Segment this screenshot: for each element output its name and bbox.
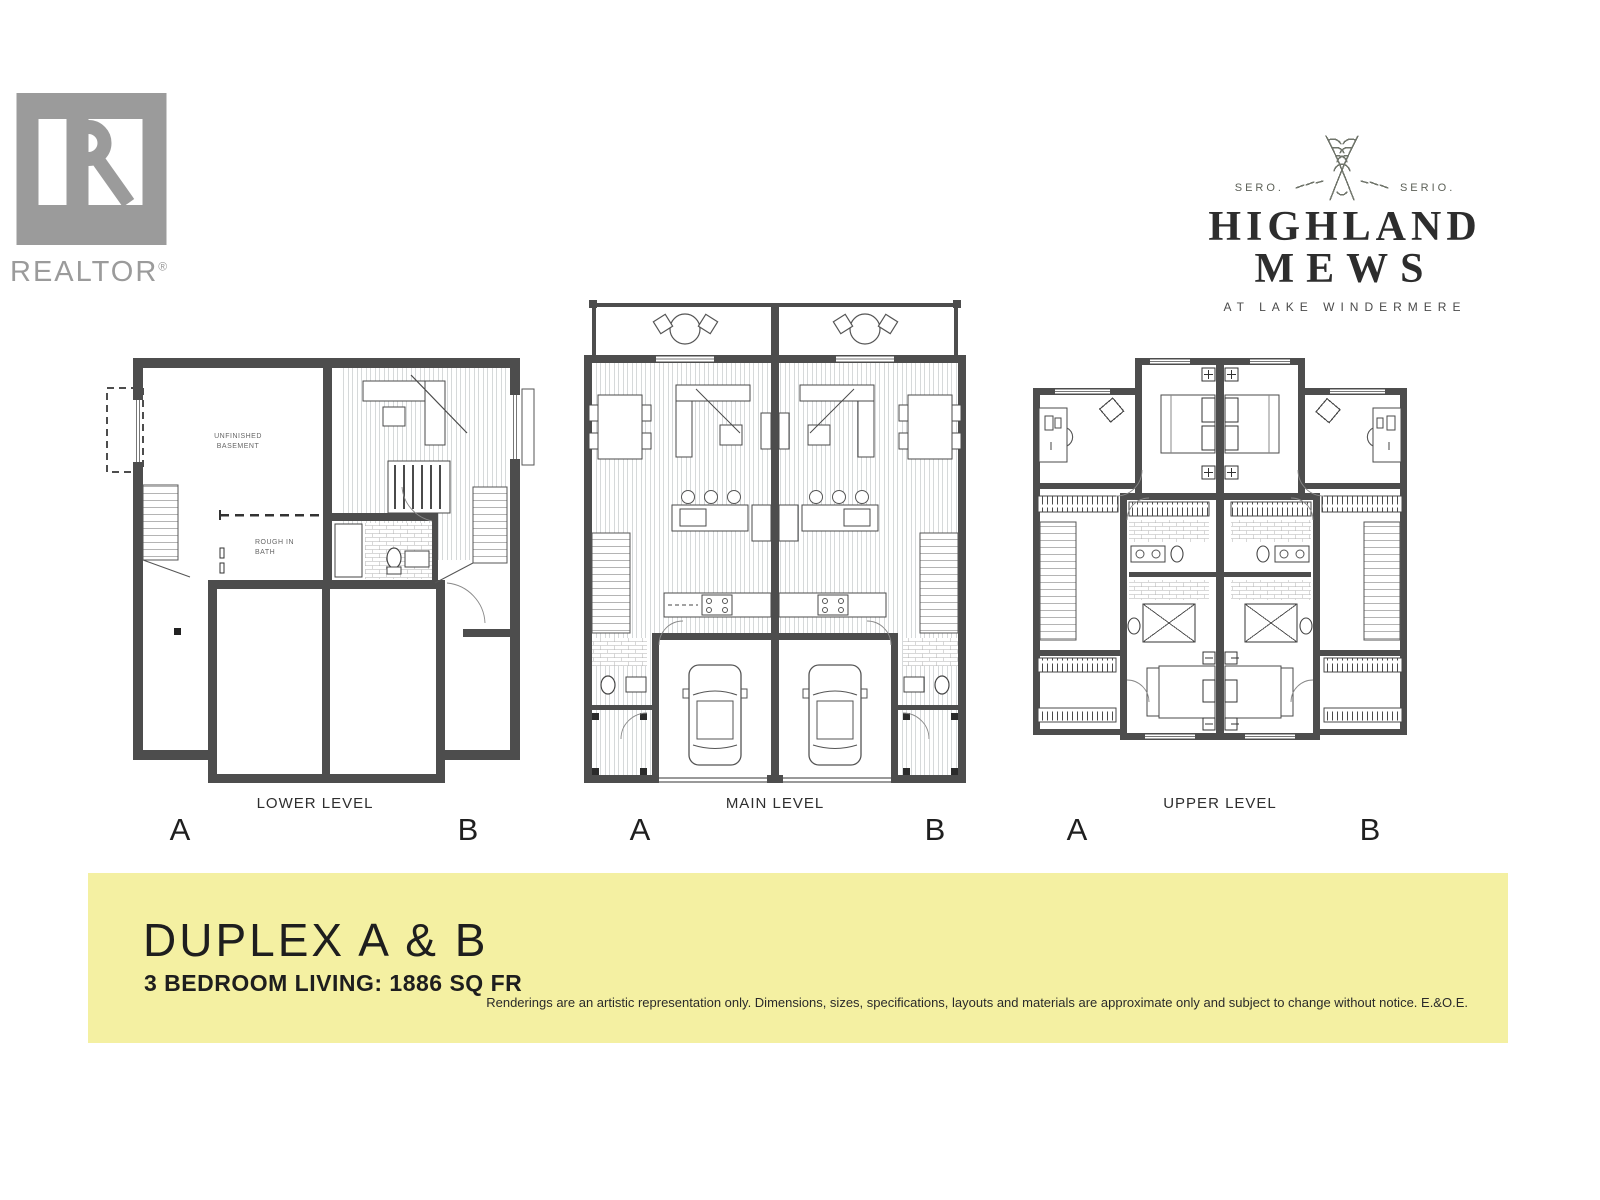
motto-left: SERO. xyxy=(1235,182,1284,204)
stairs-right xyxy=(473,487,507,563)
unit-a-label-lower: A xyxy=(160,812,200,848)
room-label-bath-1: ROUGH IN xyxy=(255,539,294,546)
flyer-page: REALTOR® SERO. SERIO. HIGHLAND xyxy=(0,0,1600,1200)
unit-b-label-upper: B xyxy=(1350,812,1390,848)
banner-title: DUPLEX A & B xyxy=(143,913,488,967)
main-level-caption: MAIN LEVEL xyxy=(568,795,982,812)
realtor-logo: REALTOR® xyxy=(10,93,180,289)
stairs-right xyxy=(920,533,958,633)
registered-mark: ® xyxy=(158,259,169,273)
brand-name-line2: MEWS xyxy=(1180,248,1510,290)
unit-b-label-main: B xyxy=(915,812,955,848)
foundation-boxes xyxy=(208,580,445,783)
lower-level-caption: LOWER LEVEL xyxy=(95,795,535,812)
room-label-bath-2: BATH xyxy=(255,549,275,556)
upper-walls xyxy=(1033,358,1407,740)
floor-plan-main-level xyxy=(568,293,982,793)
upper-level-caption: UPPER LEVEL xyxy=(1025,795,1415,812)
banner-subtitle: 3 BEDROOM LIVING: 1886 SQ FR xyxy=(144,970,522,997)
deck xyxy=(589,300,961,355)
realtor-r-icon xyxy=(10,93,173,245)
unit-a-label-main: A xyxy=(620,812,660,848)
stairs-left xyxy=(592,533,630,633)
motto-right: SERIO. xyxy=(1400,182,1455,204)
room-label-basement-1: UNFINISHED xyxy=(214,433,262,440)
realtor-wordmark: REALTOR® xyxy=(10,256,180,289)
brand-name-line1: HIGHLAND xyxy=(1180,206,1510,248)
unit-a-label-upper: A xyxy=(1057,812,1097,848)
banner-disclaimer: Renderings are an artistic representatio… xyxy=(486,995,1468,1010)
brand-logo: SERO. SERIO. HIGHLAND MEWS AT LAKE WINDE… xyxy=(1180,122,1510,314)
info-banner: DUPLEX A & B 3 BEDROOM LIVING: 1886 SQ F… xyxy=(88,873,1508,1043)
floor-plan-upper-level xyxy=(1025,350,1415,768)
unit-b-label-lower: B xyxy=(448,812,488,848)
stairs-left xyxy=(1040,522,1076,640)
wheat-icon xyxy=(1294,126,1390,204)
floor-plan-lower-level: UNFINISHED BASEMENT ROUGH IN BATH xyxy=(95,345,535,815)
stairs-left xyxy=(143,485,178,560)
brand-tagline: AT LAKE WINDERMERE xyxy=(1180,300,1510,314)
stairs-right xyxy=(1364,522,1400,640)
room-label-basement-2: BASEMENT xyxy=(217,443,260,450)
realtor-label: REALTOR xyxy=(10,256,158,288)
brand-motto: SERO. SERIO. xyxy=(1180,122,1510,204)
